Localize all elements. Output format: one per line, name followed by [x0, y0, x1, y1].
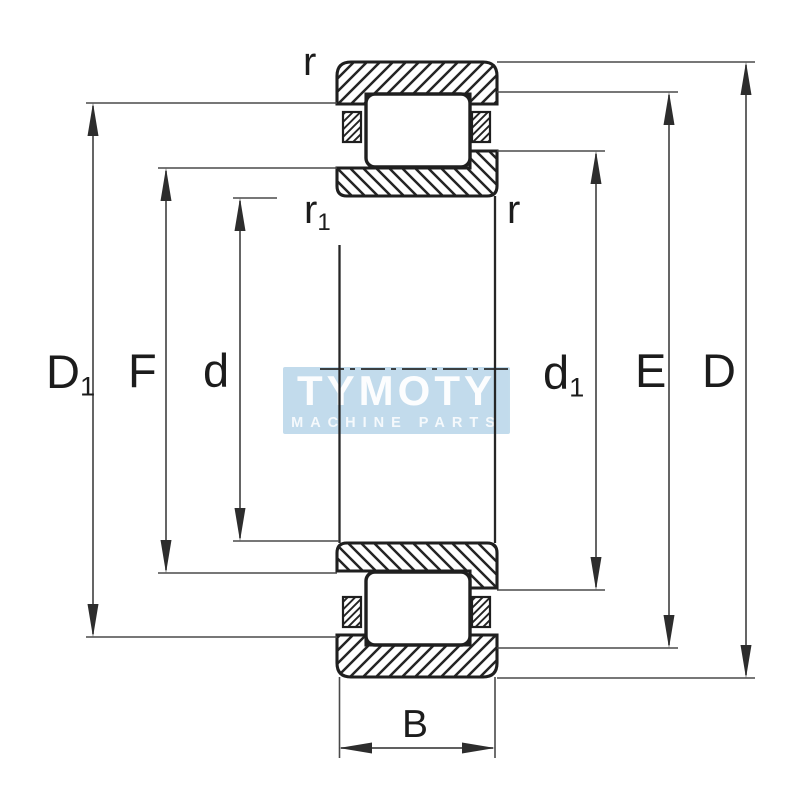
- cage-left-top: [343, 112, 361, 142]
- dimension-label-d1: d1: [543, 349, 584, 401]
- radius-label-r-top-left: r: [303, 42, 316, 82]
- dimension-label-D: D: [702, 347, 736, 394]
- bearing-technical-drawing: TYMOTY MACHINE PARTS: [0, 0, 800, 800]
- roller-top: [366, 94, 470, 167]
- radius-label-r-right: r: [507, 190, 520, 230]
- bearing-section-top: [337, 62, 497, 196]
- dimension-label-E: E: [635, 347, 666, 394]
- roller-bottom: [366, 572, 470, 645]
- dimension-label-d: d: [203, 347, 229, 394]
- radius-label-r1: r1: [304, 190, 331, 235]
- drawing-canvas: [0, 0, 800, 800]
- cage-left-bottom: [343, 597, 361, 627]
- bearing-section-bottom: [337, 543, 497, 677]
- dimension-label-F: F: [128, 347, 157, 394]
- dimension-label-B: B: [402, 705, 428, 744]
- cage-right-top: [472, 112, 490, 142]
- dimension-label-D1: D1: [46, 348, 95, 400]
- cage-right-bottom: [472, 597, 490, 627]
